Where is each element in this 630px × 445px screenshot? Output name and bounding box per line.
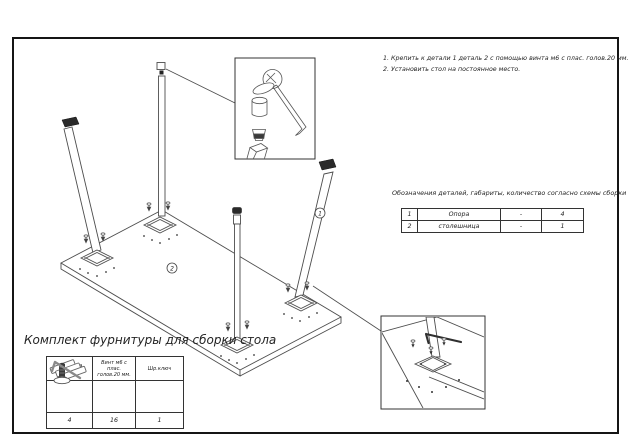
- parts-row-2-dims: -: [501, 221, 542, 233]
- screw-icon: [166, 202, 170, 210]
- kit-col-key-qty: 1: [136, 413, 184, 429]
- parts-row-2-qty: 1: [542, 221, 584, 233]
- kit-table: Заглушка для трубы Винт м6 с плас. голов…: [46, 356, 184, 429]
- drawing-page: 1 2: [0, 0, 630, 445]
- kit-col-key-cell: [136, 381, 184, 413]
- balloon-part-1-label: 1: [318, 210, 322, 217]
- kit-col-plug-qty: 4: [47, 413, 93, 429]
- pipe-cap-icon: [62, 117, 79, 127]
- callout-detail-plate: [381, 316, 485, 409]
- kit-col-screw-qty: 16: [93, 413, 136, 429]
- screw-icon: [84, 235, 88, 243]
- assembly-instructions: 1. Крепить к детали 1 деталь 2 с помощью…: [383, 53, 629, 75]
- kit-col-key-header: Шр.ключ: [136, 357, 184, 381]
- pipe-cap-icon: [319, 159, 336, 170]
- instruction-step-1: 1. Крепить к детали 1 деталь 2 с помощью…: [383, 53, 629, 64]
- parts-row-1-num: 1: [402, 209, 418, 221]
- screw-icon: [305, 282, 309, 290]
- pipe-cap-icon: [233, 208, 242, 214]
- parts-row-2-num: 2: [402, 221, 418, 233]
- parts-table: 1 Опора - 4 2 столешница - 1: [401, 208, 584, 233]
- balloon-part-2: 2: [167, 263, 177, 273]
- pipe-plug-icon: [157, 63, 165, 70]
- parts-row-1-qty: 4: [542, 209, 584, 221]
- kit-col-plug-cell: [47, 381, 93, 413]
- kit-table-title: Комплект фурнитуры для сборки стола: [24, 333, 276, 347]
- balloon-part-2-label: 2: [170, 265, 174, 272]
- kit-col-screw-header: Винт м6 с плас. голов.20 мм.: [93, 357, 136, 381]
- leader-line-top-detail: [166, 69, 235, 103]
- callout-detail-fasteners: [235, 58, 315, 159]
- parts-row-2-name: столешница: [418, 221, 501, 233]
- pipe-cap-small-icon: [253, 130, 266, 141]
- kit-col-screw-cell: [93, 381, 136, 413]
- parts-row-1-dims: -: [501, 209, 542, 221]
- screw-icon: [101, 233, 105, 241]
- parts-row-1-name: Опора: [418, 209, 501, 221]
- instruction-step-2: 2. Установить стол на постоянное место.: [383, 64, 629, 75]
- screw-icon: [147, 203, 151, 211]
- balloon-part-1: 1: [315, 208, 325, 218]
- hex-key-icon: [47, 357, 85, 383]
- parts-table-title: Обозначения деталей, габариты, количеств…: [392, 189, 626, 197]
